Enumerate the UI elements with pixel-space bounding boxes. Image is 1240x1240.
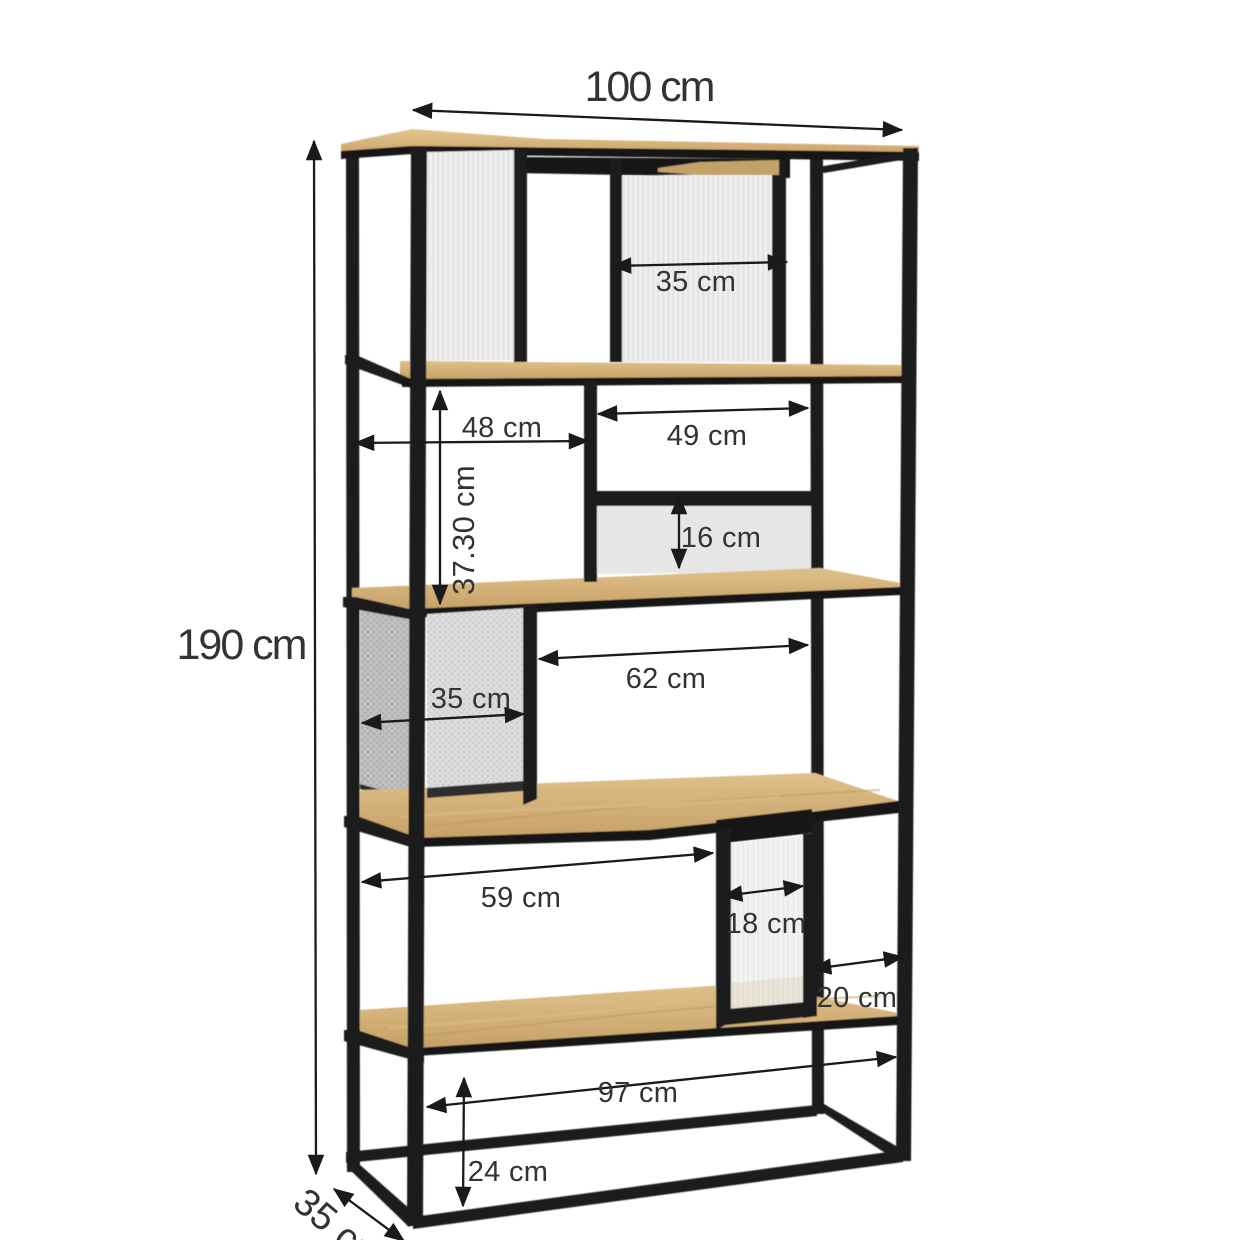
svg-text:49 cm: 49 cm — [667, 420, 747, 452]
svg-text:37.30 cm: 37.30 cm — [446, 465, 481, 595]
svg-text:16 cm: 16 cm — [681, 522, 761, 554]
svg-text:62 cm: 62 cm — [626, 663, 706, 695]
svg-text:97 cm: 97 cm — [598, 1077, 678, 1109]
svg-text:24 cm: 24 cm — [468, 1156, 548, 1188]
svg-text:20 cm: 20 cm — [817, 982, 897, 1014]
svg-text:100 cm: 100 cm — [584, 63, 713, 111]
svg-text:35 cm: 35 cm — [431, 683, 511, 715]
svg-text:190 cm: 190 cm — [176, 621, 305, 669]
svg-text:59 cm: 59 cm — [481, 882, 561, 914]
svg-text:48 cm: 48 cm — [462, 412, 542, 444]
svg-text:35 cm: 35 cm — [656, 266, 736, 298]
svg-text:18 cm: 18 cm — [726, 908, 806, 940]
